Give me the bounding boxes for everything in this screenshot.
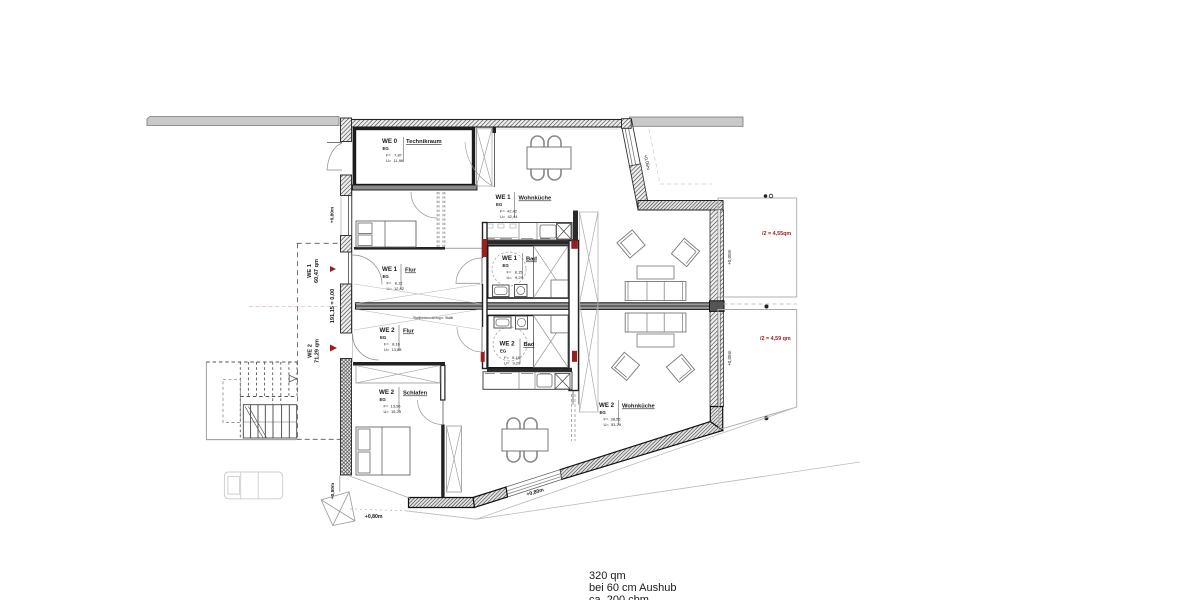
svg-text:/2 = 4,59 qm: /2 = 4,59 qm [760, 336, 791, 342]
svg-text:EG: EG [600, 410, 607, 415]
svg-text:Flur: Flur [405, 268, 417, 274]
svg-text:WE 1: WE 1 [496, 194, 512, 201]
svg-text:U= 9,29: U= 9,29 [507, 275, 524, 280]
svg-text:WE 1: WE 1 [502, 255, 518, 262]
svg-text:F= 8,16: F= 8,16 [384, 342, 401, 347]
svg-text:F= 8,15: F= 8,15 [507, 270, 524, 275]
svg-text:F= 13,96: F= 13,96 [384, 404, 402, 409]
svg-text:EG: EG [500, 349, 507, 354]
svg-text:Technikraum: Technikraum [406, 139, 442, 145]
svg-text:F= 5,16: F= 5,16 [504, 355, 521, 360]
svg-text:/2 = 4,55qm: /2 = 4,55qm [762, 231, 791, 237]
svg-text:Flur: Flur [403, 329, 415, 335]
svg-text:+0,80m: +0,80m [330, 207, 336, 223]
svg-text:U= 11,96: U= 11,96 [386, 158, 404, 163]
svg-text:71,29 qm: 71,29 qm [315, 339, 321, 363]
svg-text:F= 38,55: F= 38,55 [604, 417, 622, 422]
svg-text:EG: EG [380, 397, 387, 402]
svg-text:F= 42,42: F= 42,42 [500, 209, 518, 214]
svg-text:191,15 = 0,00: 191,15 = 0,00 [330, 289, 336, 323]
svg-text:Wohnküche: Wohnküche [519, 196, 553, 202]
svg-text:WE 2: WE 2 [379, 389, 395, 396]
svg-text:U= 15,23: U= 15,23 [384, 409, 402, 414]
svg-text:bei 60 cm Aushub: bei 60 cm Aushub [589, 582, 676, 594]
svg-text:F= 7,87: F= 7,87 [386, 153, 403, 158]
svg-text:EG: EG [380, 335, 387, 340]
svg-text:WE 1: WE 1 [307, 264, 313, 278]
svg-text:320 qm: 320 qm [589, 570, 626, 582]
svg-text:+0,05m: +0,05m [727, 350, 732, 366]
svg-text:F= 8,12: F= 8,12 [387, 281, 404, 286]
svg-text:WE 0: WE 0 [382, 138, 398, 145]
svg-text:U= 13,88: U= 13,88 [384, 347, 402, 352]
svg-text:Bad: Bad [524, 342, 535, 348]
svg-text:WE 2: WE 2 [380, 327, 396, 334]
svg-text:Schlafen: Schlafen [403, 391, 428, 397]
svg-text:EG: EG [383, 274, 390, 279]
svg-text:60,47 qm: 60,47 qm [314, 259, 320, 283]
svg-text:U= 42,44: U= 42,44 [500, 214, 518, 219]
svg-text:U= 9,29: U= 9,29 [504, 361, 521, 366]
svg-text:EG: EG [503, 263, 510, 268]
svg-text:ca. 200 cbm: ca. 200 cbm [589, 594, 649, 600]
svg-text:U= 53,29: U= 53,29 [604, 422, 622, 427]
svg-text:+0,05m: +0,05m [727, 249, 732, 265]
svg-text:+0,80m: +0,80m [365, 514, 383, 520]
svg-text:WE 2: WE 2 [599, 402, 615, 409]
svg-text:Wohnküche: Wohnküche [622, 404, 656, 410]
svg-text:WE 2: WE 2 [500, 341, 516, 348]
svg-text:WE 1: WE 1 [382, 266, 398, 273]
svg-text:EG: EG [383, 146, 390, 151]
svg-text:EG: EG [496, 202, 503, 207]
svg-text:WE 2: WE 2 [308, 344, 314, 358]
svg-text:Bad: Bad [526, 257, 537, 263]
svg-text:+0,80m: +0,80m [330, 483, 336, 499]
